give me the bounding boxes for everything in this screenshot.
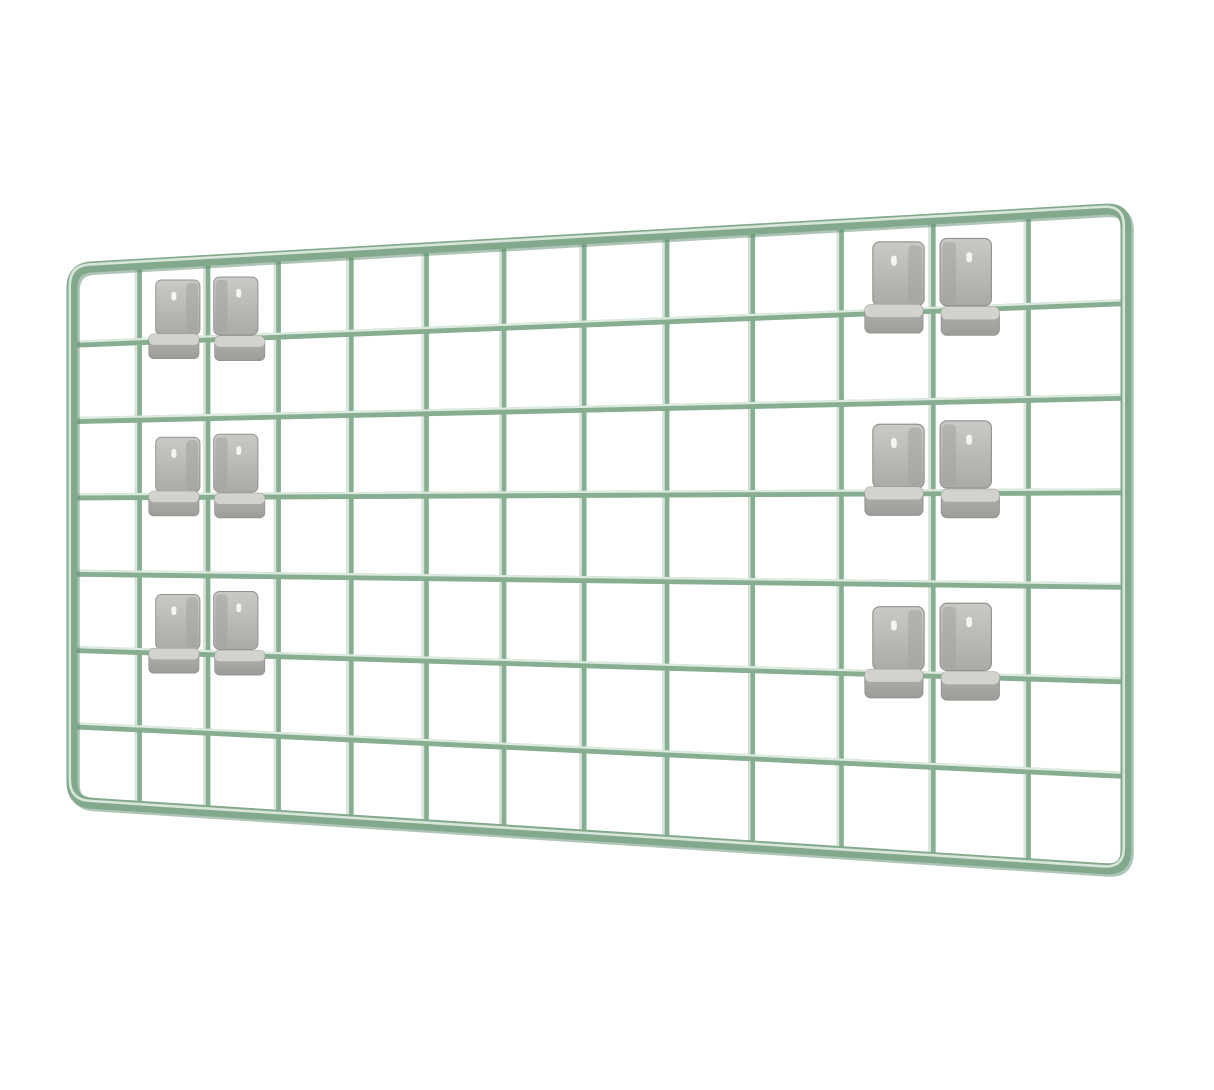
grid-wire-vertical xyxy=(423,251,427,821)
mounting-clip-left xyxy=(149,594,200,673)
clip-highlight xyxy=(891,438,897,448)
clip-plate-shade xyxy=(908,245,922,303)
grid-wire-vertical xyxy=(749,233,753,842)
grid-wire-vertical xyxy=(1025,218,1029,860)
clip-plate-shade xyxy=(186,440,198,490)
mounting-clip-left xyxy=(865,424,924,515)
clip-plate-shade xyxy=(216,594,228,647)
clip-plate-shade xyxy=(908,428,922,486)
clip-hook-top xyxy=(149,649,199,660)
clip-plate-shade xyxy=(186,283,198,333)
mounting-clip-left xyxy=(865,242,924,333)
clip-plate-shade xyxy=(942,242,956,304)
clip-hook-top xyxy=(215,493,265,504)
clip-plate-shade xyxy=(216,437,228,490)
clip-highlight xyxy=(891,620,897,630)
mounting-clip-left xyxy=(865,607,924,698)
clip-hook-top xyxy=(149,491,199,502)
clip-hook-top xyxy=(865,305,923,318)
clip-hook-top xyxy=(215,651,265,662)
clip-highlight xyxy=(171,292,176,301)
clip-plate-shade xyxy=(942,607,956,669)
clip-plate-shade xyxy=(216,280,228,333)
grid-wire-vertical xyxy=(501,247,505,826)
clip-hook-top xyxy=(865,487,923,500)
grid-wire-vertical xyxy=(581,242,585,831)
mounting-clip-right xyxy=(214,277,265,361)
wire-highlight xyxy=(75,395,1120,418)
clip-plate-shade xyxy=(186,597,198,647)
mounting-clip-right xyxy=(214,592,265,676)
clip-hook-top xyxy=(215,336,265,347)
mounting-clip-left xyxy=(149,280,200,359)
wire-grid-panel-svg xyxy=(0,0,1214,1090)
grid-wire-horizontal xyxy=(75,571,1120,589)
clip-highlight xyxy=(171,449,176,458)
grid-wire-vertical xyxy=(348,256,352,817)
wire-highlight xyxy=(75,723,1120,772)
canvas xyxy=(0,0,1214,1090)
horizontal-wires-layer xyxy=(75,300,1120,777)
clip-hook-top xyxy=(941,672,999,685)
clip-highlight xyxy=(236,603,241,612)
grid-wire-vertical xyxy=(275,260,279,812)
clip-highlight xyxy=(966,435,972,445)
clip-plate-shade xyxy=(942,424,956,486)
clip-hook-top xyxy=(941,307,999,320)
grid-wire-vertical xyxy=(205,264,209,808)
clip-hook-top xyxy=(941,489,999,502)
clip-highlight xyxy=(891,256,897,266)
wire-body xyxy=(75,726,1120,775)
grid-wire-horizontal xyxy=(75,395,1120,423)
clip-highlight xyxy=(966,617,972,627)
grid-wire-vertical xyxy=(838,228,842,848)
grid-wire-vertical xyxy=(136,267,140,803)
mounting-clip-right xyxy=(940,238,999,335)
wire-body xyxy=(75,397,1120,420)
grid-panel xyxy=(70,207,1129,872)
wire-body xyxy=(75,573,1120,586)
clip-plate-shade xyxy=(908,610,922,668)
mounting-clip-right xyxy=(214,434,265,518)
mounting-clip-left xyxy=(149,437,200,516)
clip-hook-top xyxy=(865,669,923,682)
grid-wire-vertical xyxy=(930,223,934,854)
grid-wire-vertical xyxy=(664,238,668,837)
clip-highlight xyxy=(236,446,241,455)
mounting-clip-right xyxy=(940,421,999,518)
clip-hook-top xyxy=(149,334,199,345)
mounting-clip-right xyxy=(940,603,999,700)
product-photo-wire-grid-panel xyxy=(0,0,1214,1090)
clip-highlight xyxy=(236,289,241,298)
clip-highlight xyxy=(966,252,972,262)
clip-highlight xyxy=(171,606,176,615)
grid-wire-horizontal xyxy=(75,723,1120,777)
